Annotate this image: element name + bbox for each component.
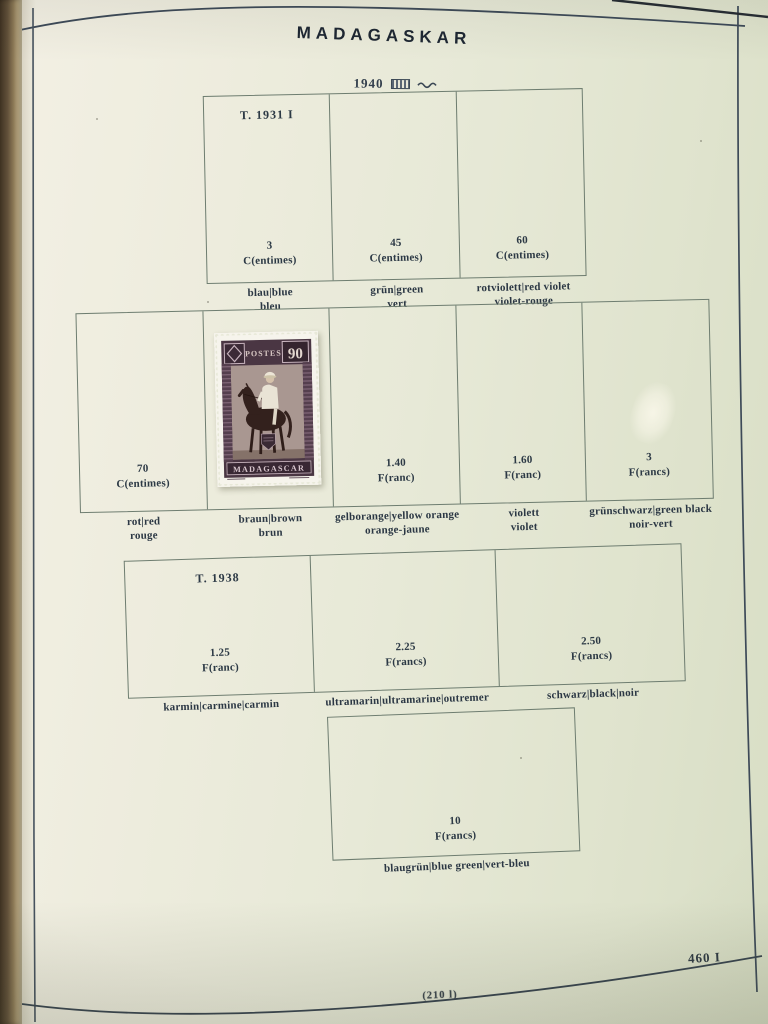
stamp-box: T. 1938 1.25F(ranc) [125, 556, 315, 698]
album-page-number: 460 I [688, 949, 722, 967]
stamp-box: 1.60F(ranc) [456, 303, 587, 504]
stamp-box: 60C(entimes) [456, 89, 585, 278]
stamp-postes-text: POSTES [245, 349, 282, 359]
border-right-line [738, 6, 757, 992]
dust-speck [207, 301, 209, 303]
stamp-box: 45C(entimes) [330, 92, 460, 281]
stamp-country-text: MADAGASCAR [233, 464, 305, 475]
plate-footnote: (210 l) [370, 988, 510, 1004]
color-caption: ultramarin|ultramarine|outremer [314, 690, 500, 710]
type-note: T. 1931 I [204, 106, 330, 124]
stamp-box: 70C(entimes) [76, 311, 207, 512]
denomination-label: 2.25F(rancs) [385, 640, 427, 670]
page-curl-shadow [22, 0, 36, 1024]
denomination-label: 1.40F(ranc) [377, 456, 414, 485]
denomination-label: 1.60F(ranc) [504, 453, 541, 482]
color-caption: gelborange|yellow orangeorange-jaune [334, 508, 461, 539]
album-binding-edge [0, 0, 22, 1024]
denomination-label: 3F(rancs) [628, 450, 670, 480]
stamp-denomination-text: 90 [288, 346, 303, 362]
album-cover-edge-line [612, 0, 768, 17]
issue-row-1938: T. 1938 1.25F(ranc) 2.25F(rancs) 2.50F(r… [124, 543, 687, 716]
issue-row-4: 10F(rancs) blaugrün|blue green|vert-bleu [327, 707, 581, 878]
type-note: T. 1938 [125, 568, 310, 589]
stamp-box: 2.25F(rancs) [310, 550, 500, 692]
hatched-box-watermark-icon [390, 79, 409, 89]
madagascar-stamp: POSTES 90 [214, 331, 321, 487]
issue-row-2: 70C(entimes) [75, 299, 714, 545]
dust-speck [700, 140, 702, 142]
color-caption: schwarz|black|noir [500, 684, 686, 704]
issue-row-1931: T. 1931 I 3C(entimes) 45C(entimes) 60C(e… [203, 88, 588, 316]
dust-speck [96, 118, 98, 120]
stamp-box: 2.50F(rancs) [496, 544, 685, 686]
border-bottom-line [22, 956, 762, 1014]
denomination-label: 3C(entimes) [243, 238, 297, 268]
denomination-label: 10F(rancs) [434, 814, 476, 844]
denomination-label: 1.25F(ranc) [201, 646, 239, 676]
page-title: MADAGASKAR [0, 13, 768, 60]
denomination-label: 45C(entimes) [369, 236, 423, 266]
color-caption: karmin|carmine|carmin [128, 696, 314, 716]
album-page-photo: MADAGASKAR 1940 T. 1931 I 3C(entimes) 45… [0, 0, 768, 1024]
color-caption: braun|brownbrun [207, 510, 334, 541]
denomination-label: 70C(entimes) [116, 462, 170, 492]
color-caption: grünschwarz|green blacknoir-vert [587, 502, 714, 533]
color-caption: violettviolet [460, 505, 587, 536]
year-label: 1940 [353, 76, 383, 92]
stamp-box: T. 1931 I 3C(entimes) [204, 94, 334, 283]
stamp-box-with-stamp: POSTES 90 [203, 308, 334, 509]
dust-speck [520, 757, 522, 759]
wavy-line-watermark-icon [416, 80, 438, 89]
stamp-box: 1.40F(ranc) [330, 306, 461, 507]
stamp-box: 10F(rancs) [328, 708, 579, 859]
denomination-label: 60C(entimes) [495, 233, 549, 263]
color-caption: rot|redrouge [80, 513, 207, 544]
denomination-label: 2.50F(rancs) [570, 634, 612, 664]
stamp-box: 3F(rancs) [583, 300, 713, 501]
